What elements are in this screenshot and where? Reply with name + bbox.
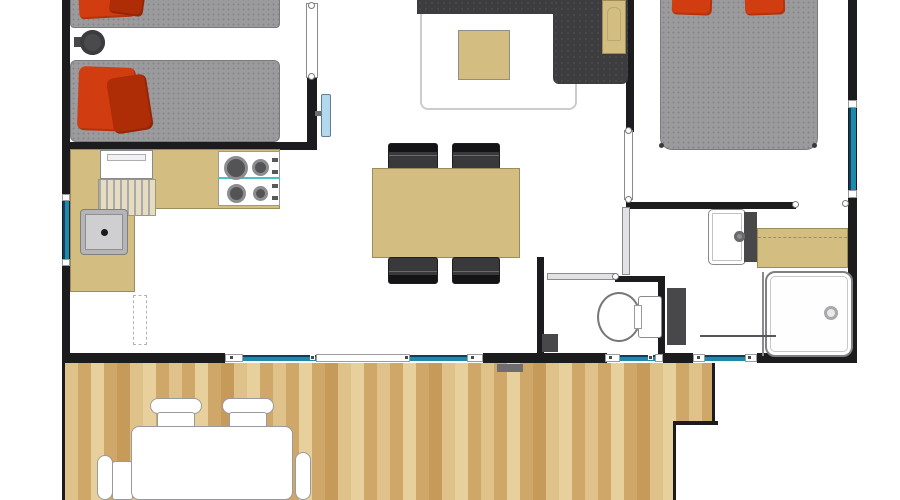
shower-screen — [762, 272, 764, 356]
washbasin-tap-icon — [734, 231, 745, 242]
wall-tv — [321, 94, 331, 137]
right-window-cap-top — [848, 100, 857, 108]
wc-window-frame-right — [655, 354, 663, 362]
dining-chair-1 — [388, 143, 438, 170]
deck-step-edge — [673, 421, 718, 425]
shower-drain-icon — [824, 306, 838, 320]
bed2-cushion-inner — [106, 73, 154, 135]
dining-chair-2 — [452, 143, 500, 170]
window-roller-icon — [747, 355, 752, 360]
right-window-cap-bottom — [848, 190, 857, 198]
double-bed-cushion-left — [672, 0, 713, 16]
hob-burner-icon — [227, 184, 246, 203]
hob-burner-icon — [224, 156, 248, 180]
garden-chair-back-3 — [97, 455, 113, 500]
door-hinge-icon — [842, 200, 849, 207]
right-window-glass — [849, 108, 856, 190]
window-roller-icon — [310, 355, 315, 360]
dining-chair-4 — [452, 257, 500, 284]
floor-plan — [0, 0, 900, 500]
window-roller-icon — [470, 355, 475, 360]
sink-drain-icon — [101, 229, 108, 236]
refrigerator — [100, 150, 153, 179]
left-window-glass — [63, 201, 69, 259]
window-roller-icon — [404, 355, 409, 360]
dining-table — [372, 168, 520, 258]
hob-knob-icon — [272, 184, 278, 188]
door-hinge-icon — [625, 196, 632, 203]
hob-knob-icon — [272, 158, 278, 162]
shower-window-glass — [705, 355, 745, 361]
bed-leg-icon — [812, 143, 817, 148]
washbasin-vanity-panel — [744, 212, 757, 262]
wc-waste-bin — [542, 334, 558, 352]
garden-chair-back-4 — [295, 452, 311, 500]
gas-hob-accent-line — [218, 177, 280, 179]
garden-chair-seat-3 — [112, 461, 133, 500]
bathroom-worktop — [757, 228, 848, 268]
hob-burner-icon — [253, 186, 268, 201]
window-roller-icon — [696, 355, 701, 360]
shower-cubicle — [765, 271, 853, 357]
door-hinge-icon — [625, 127, 632, 134]
left-window-cap-bottom — [62, 259, 70, 266]
left-window-cap-top — [62, 194, 70, 201]
door-hinge-icon — [308, 2, 315, 9]
double-bed-cushion-right — [745, 0, 786, 16]
entrance-door-swing — [133, 295, 147, 345]
patio-door-glass-2 — [410, 355, 467, 361]
dining-chair-3 — [388, 257, 438, 284]
side-console — [602, 0, 626, 54]
shower-room-door — [622, 207, 630, 275]
door-hinge-icon — [792, 201, 799, 208]
window-roller-icon — [608, 355, 613, 360]
window-roller-icon — [648, 355, 653, 360]
garden-table — [131, 426, 293, 500]
towel-rail — [700, 335, 776, 337]
hob-knob-icon — [272, 170, 278, 174]
coffee-table — [458, 30, 510, 80]
wc-door — [547, 273, 615, 280]
double-bed — [660, 0, 818, 150]
wall-showerroom-top — [626, 202, 796, 209]
wall-bottom-1 — [62, 353, 225, 363]
doormat — [497, 364, 523, 372]
wall-bottom-3 — [663, 353, 693, 363]
window-roller-icon — [229, 355, 234, 360]
hob-burner-icon — [252, 159, 269, 176]
bedside-stool — [80, 30, 105, 55]
wall-left — [62, 0, 70, 355]
twin-bedroom-door — [306, 3, 318, 78]
master-bedroom-door — [624, 130, 633, 200]
wall-bottom-2 — [483, 353, 607, 363]
water-heater — [667, 288, 686, 345]
door-hinge-icon — [308, 73, 315, 80]
door-hinge-icon — [612, 273, 619, 280]
toilet-seat-line — [634, 305, 642, 329]
bed-leg-icon — [659, 143, 664, 148]
patio-door-frame-left — [225, 354, 243, 362]
patio-door-glass-1 — [243, 355, 316, 361]
hob-knob-icon — [272, 196, 278, 200]
patio-door-frame-middle — [316, 354, 410, 362]
